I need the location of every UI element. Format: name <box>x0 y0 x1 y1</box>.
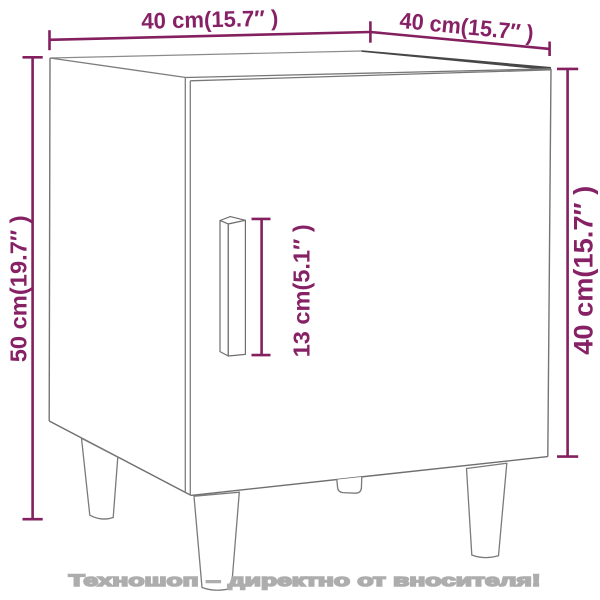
svg-text:40 cm(15.7″ ): 40 cm(15.7″ ) <box>568 186 598 355</box>
svg-text:40 cm(15.7″ ): 40 cm(15.7″ ) <box>141 6 279 34</box>
svg-text:50 cm(19.7″ ): 50 cm(19.7″ ) <box>6 215 32 362</box>
svg-text:13 cm(5.1″ ): 13 cm(5.1″ ) <box>288 224 314 357</box>
svg-text:Техношоп – директно от вносите: Техношоп – директно от вносителя! <box>69 571 541 590</box>
